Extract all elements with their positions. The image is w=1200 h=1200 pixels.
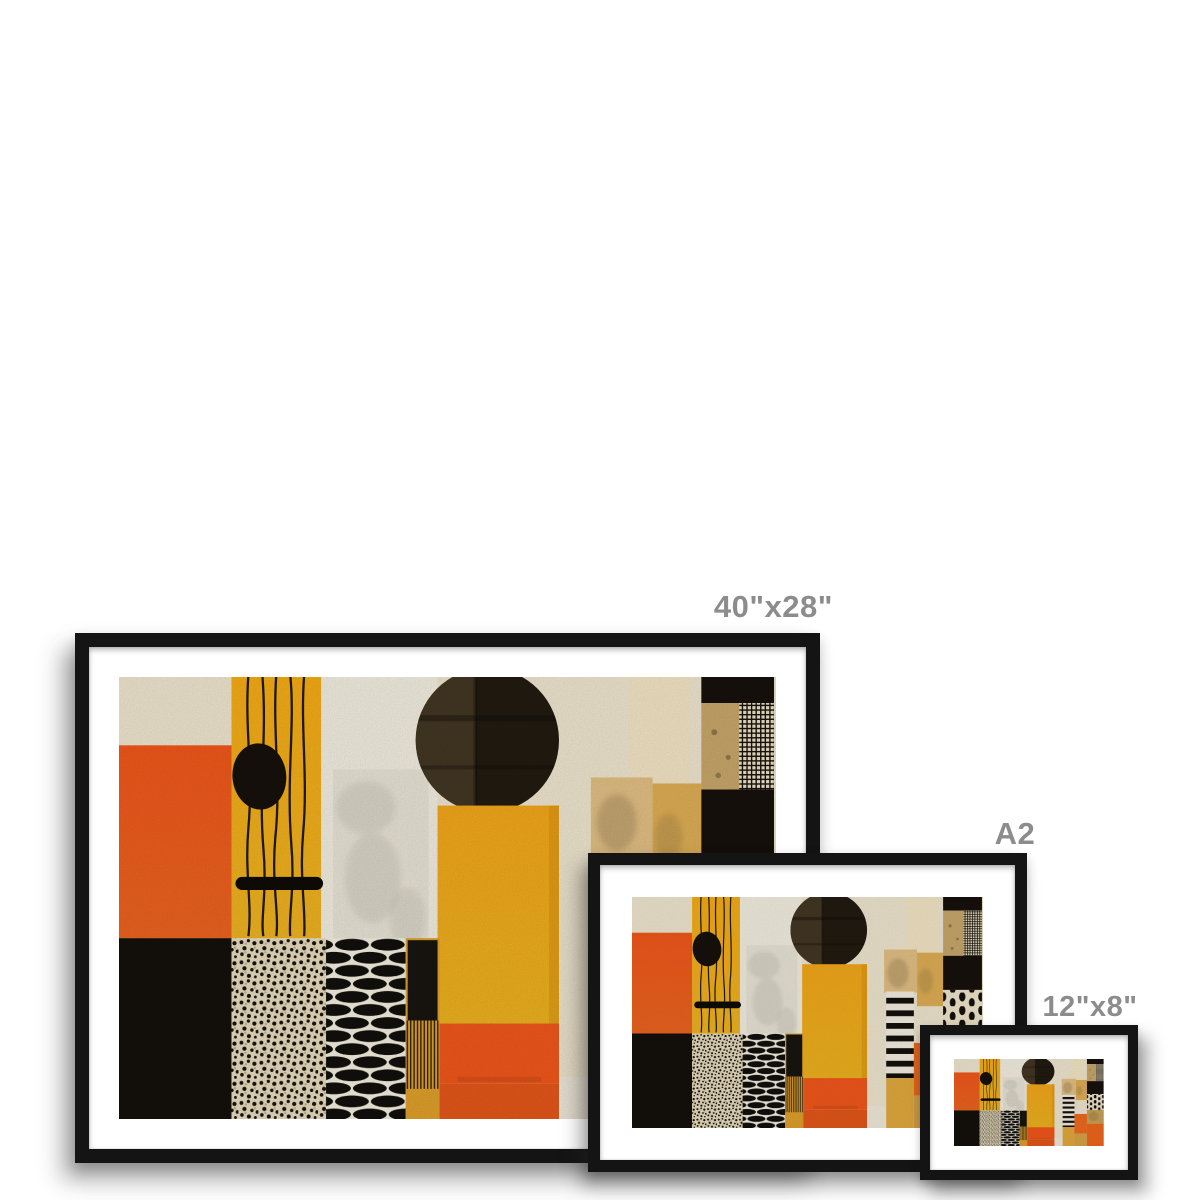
- size-label-a2: A2: [975, 816, 1055, 852]
- size-label-40x28: 40"x28": [633, 589, 833, 625]
- size-label-12x8: 12"x8": [1036, 991, 1144, 1024]
- mat-12x8: [930, 1035, 1128, 1170]
- framed-print-12x8: [920, 1025, 1138, 1180]
- artwork-12x8: [954, 1059, 1104, 1146]
- product-size-comparison-image: 40"x28" A2 12"x8": [0, 0, 1200, 1200]
